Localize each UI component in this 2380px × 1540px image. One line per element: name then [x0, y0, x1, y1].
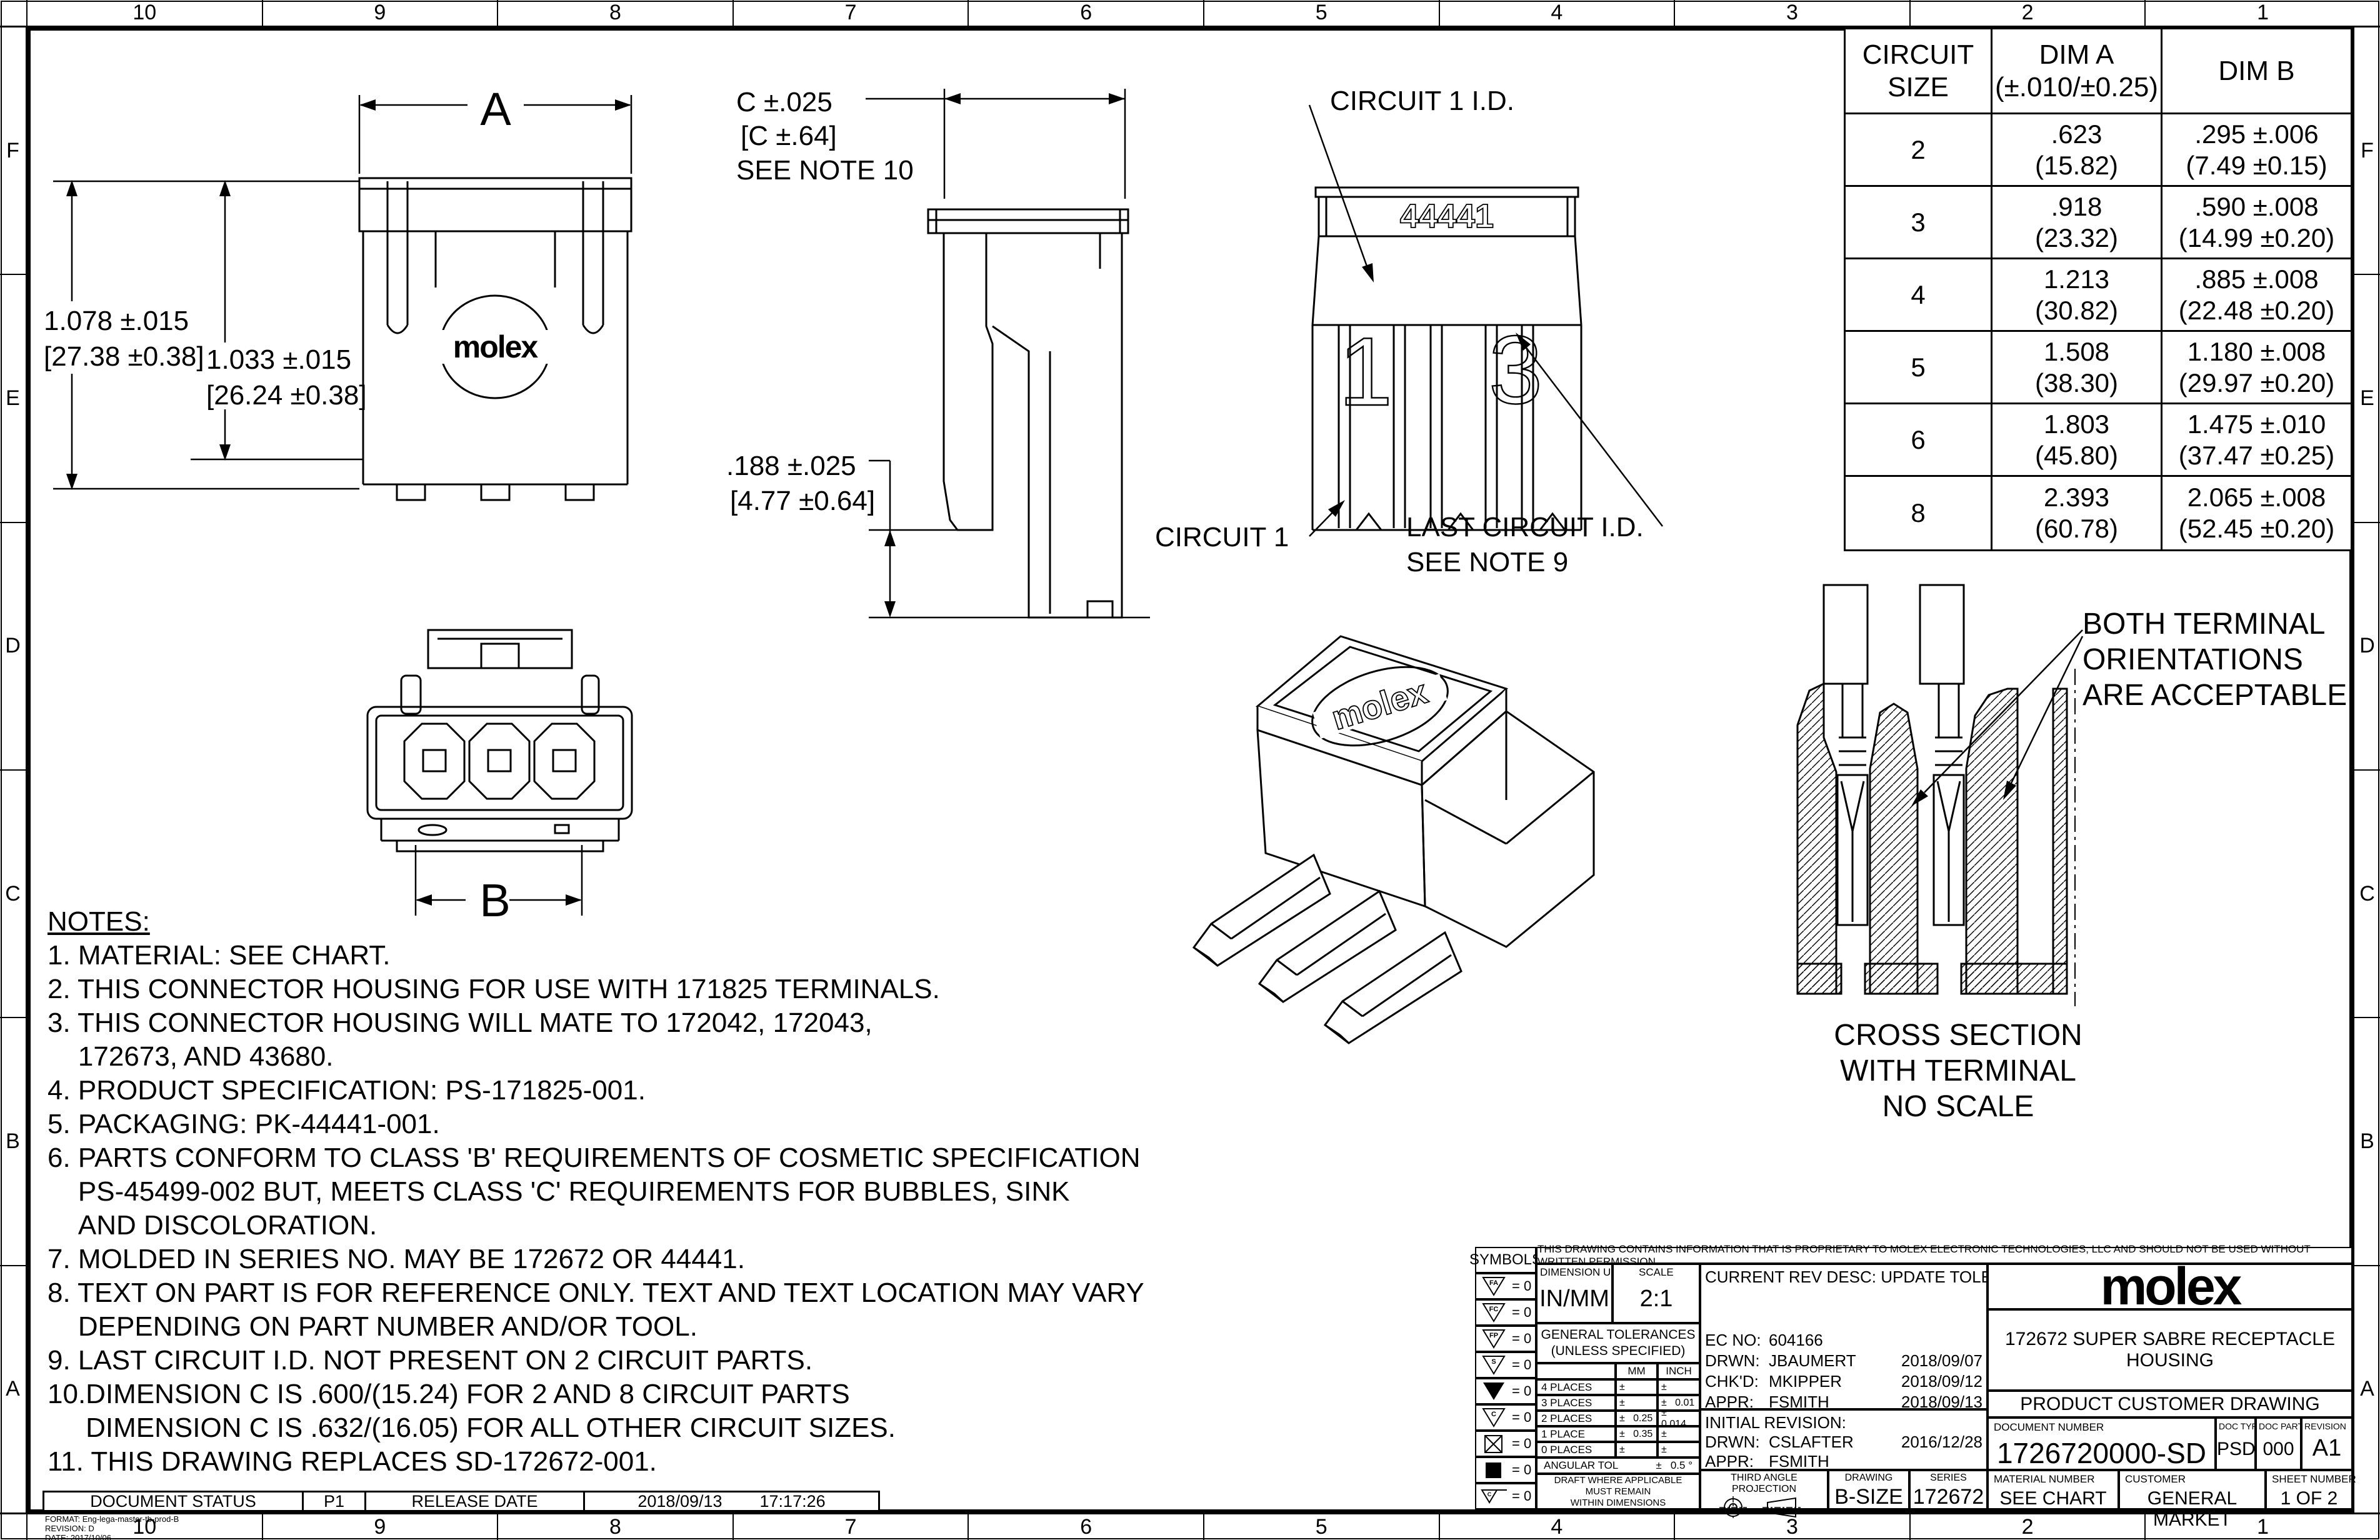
grid-row-label: F: [0, 27, 26, 275]
drawn-label: DRWN:: [1705, 1351, 1760, 1371]
table-header-circuit-size: CIRCUIT SIZE: [1846, 29, 1992, 114]
tol-row-mm: ±: [1616, 1395, 1657, 1411]
side-view-drawing: molex: [37, 81, 650, 506]
svg-text:C: C: [1487, 1491, 1492, 1497]
svg-text:FC: FC: [1489, 1306, 1499, 1313]
release-time: 17:17:26: [760, 1492, 826, 1511]
note-item: 1. MATERIAL: SEE CHART.: [47, 939, 1160, 972]
symbols-legend-heading: SYMBOLS: [1475, 1247, 1536, 1273]
table-cell-dim-a: .623(15.82): [1992, 114, 2162, 187]
tol-row-inch: ±: [1657, 1379, 1700, 1395]
checked-date: 2018/09/12: [1875, 1372, 1982, 1391]
grid-row-label: A: [0, 1266, 26, 1512]
third-angle-projection-cell: THIRD ANGLE PROJECTION: [1700, 1470, 1828, 1509]
table-cell-dim-a: 1.803(45.80): [1992, 404, 2162, 477]
note-item: 7. MOLDED IN SERIES NO. MAY BE 172672 OR…: [47, 1242, 1160, 1276]
third-angle-projection-icon: [1702, 1495, 1827, 1520]
table-cell-size: 3: [1846, 187, 1992, 259]
tol-row-mm: ±: [1616, 1442, 1657, 1457]
grid-col-label: 9: [263, 1514, 499, 1540]
scale-value: 2:1: [1612, 1286, 1700, 1312]
crossed-box-icon: [1479, 1432, 1508, 1455]
tol-row-inch: ±: [1657, 1442, 1700, 1457]
notes-list: NOTES: 1. MATERIAL: SEE CHART. 2. THIS C…: [47, 905, 1160, 1479]
grid-col-label: 5: [1204, 0, 1440, 26]
svg-text:FA: FA: [1489, 1279, 1498, 1287]
svg-text:FP: FP: [1489, 1332, 1498, 1339]
table-cell-size: 6: [1846, 404, 1992, 477]
dim-c-mm: [C ±.64]: [741, 120, 837, 152]
initial-drawn-date: 2016/12/28: [1875, 1432, 1982, 1452]
grid-ruler-top: 10 9 8 7 6 5 4 3 2 1: [0, 0, 2380, 27]
grid-corner: [0, 1514, 27, 1540]
format-line: FORMAT: Eng-lega-master-tb-prod-B: [45, 1514, 179, 1524]
table-header-dim-b: DIM B: [2162, 29, 2351, 114]
table-cell-size: 5: [1846, 332, 1992, 404]
terminal-wires: [1824, 585, 1964, 684]
grid-col-label: 6: [969, 1514, 1204, 1540]
tol-row-label: 1 PLACE: [1536, 1426, 1616, 1442]
document-number-cell: DOCUMENT NUMBER 1726720000-SD: [1987, 1417, 2216, 1470]
dim-a-letter: A: [467, 82, 524, 136]
table-cell-dim-b: 1.180 ±.008(29.97 ±0.20): [2162, 332, 2351, 404]
grid-col-label: 1: [2146, 0, 2380, 26]
table-cell-dim-a: 1.508(38.30): [1992, 332, 2162, 404]
format-date-line: DATE: 2017/10/06: [45, 1533, 179, 1540]
grid-row-label: A: [2354, 1266, 2380, 1512]
note-item: 8. TEXT ON PART IS FOR REFERENCE ONLY. T…: [47, 1276, 1160, 1344]
table-cell-dim-b: .590 ±.008(14.99 ±0.20): [2162, 187, 2351, 259]
fp-triangle-icon: FP: [1479, 1327, 1508, 1350]
table-cell-dim-b: .885 ±.008(22.48 ±0.20): [2162, 259, 2351, 332]
ec-no-label: EC NO:: [1705, 1331, 1761, 1350]
grid-row-label: E: [2354, 275, 2380, 522]
grid-row-label: B: [2354, 1018, 2380, 1266]
molded-circuit-3-numeral: 3: [1489, 316, 1542, 424]
svg-text:S: S: [1491, 1358, 1496, 1366]
document-status-label: DOCUMENT STATUS: [42, 1491, 304, 1512]
sheet-number-value: 1 OF 2: [2267, 1488, 2351, 1509]
release-date: 2018/09/13: [637, 1492, 722, 1511]
approved-date: 2018/09/13: [1875, 1392, 1982, 1412]
ec-no-value: 604166: [1769, 1331, 1823, 1350]
initial-drawn-label: DRWN:: [1705, 1432, 1760, 1452]
title-block: SYMBOLS FA = 0 FC = 0 FP = 0 S = 0 = 0 C…: [1475, 1247, 2352, 1509]
drawn-name: JBAUMERT: [1769, 1351, 1856, 1371]
initial-approved-label: APPR:: [1705, 1452, 1754, 1471]
grid-col-label: 7: [734, 1514, 969, 1540]
circuit-1-id-label: CIRCUIT 1 I.D.: [1330, 85, 1514, 117]
customer-value: GENERAL MARKET: [2120, 1488, 2264, 1531]
c-triangle-line-icon: C: [1479, 1485, 1508, 1507]
grid-row-label: D: [0, 523, 26, 771]
initial-approved-name: FSMITH: [1769, 1452, 1829, 1471]
tol-row-mm: ± 0.35: [1616, 1426, 1657, 1442]
svg-text:C: C: [1491, 1411, 1496, 1418]
face-view-drawing: 44441 1 3: [1150, 62, 1719, 581]
grid-col-label: 6: [969, 0, 1204, 26]
molex-logo-text: molex: [453, 329, 539, 364]
fc-triangle-icon: FC: [1479, 1301, 1508, 1324]
dim-c-inch: C ±.025: [736, 86, 832, 119]
connector-profile-outline: [928, 209, 1128, 617]
connector-front-outline: [367, 630, 632, 851]
drawing-sheet: 10 9 8 7 6 5 4 3 2 1 10 9 8 7 6 5 4 3 2 …: [0, 0, 2380, 1540]
doc-part-cell: DOC PART 000: [2256, 1417, 2301, 1470]
revision-cell: REVISION A1: [2301, 1417, 2352, 1470]
table-cell-dim-b: 1.475 ±.010(37.47 ±0.25): [2162, 404, 2351, 477]
sheet-number-label: SHEET NUMBER: [2272, 1473, 2351, 1486]
tol-row-inch: ±: [1657, 1426, 1700, 1442]
last-circuit-id-label: LAST CIRCUIT I.D.: [1406, 511, 1644, 544]
dim-a-header-title: DIM A: [2039, 39, 2114, 71]
grid-row-label: F: [2354, 27, 2380, 275]
molex-logo-side: molex: [437, 296, 552, 398]
molex-wordmark-cell: molex: [1987, 1264, 2352, 1309]
scale-label: SCALE: [1639, 1266, 1674, 1279]
note-item: 6. PARTS CONFORM TO CLASS 'B' REQUIREMEN…: [47, 1141, 1160, 1242]
series-label: SERIES: [1911, 1472, 1986, 1484]
symbol-row: S = 0: [1475, 1352, 1536, 1378]
revision-value: A1: [2302, 1435, 2351, 1462]
tol-row-mm: ±: [1616, 1379, 1657, 1395]
dimension-arrows: [66, 99, 631, 490]
grid-col-label: 10: [27, 0, 263, 26]
doc-type-value: PSD: [2217, 1439, 2254, 1460]
table-cell-dim-b: .295 ±.006(7.49 ±0.15): [2162, 114, 2351, 187]
isometric-view-drawing: molex: [1156, 612, 1631, 1056]
see-note-10-label: SEE NOTE 10: [736, 154, 914, 187]
table-cell-size: 2: [1846, 114, 1992, 187]
approved-label: APPR:: [1705, 1392, 1754, 1412]
third-angle-projection-label: THIRD ANGLE PROJECTION: [1701, 1472, 1827, 1495]
checked-label: CHK'D:: [1705, 1372, 1759, 1391]
dimension-units-value: IN/MM: [1536, 1286, 1612, 1312]
grid-row-label: D: [2354, 523, 2380, 771]
symbol-row: FA = 0: [1475, 1273, 1536, 1299]
grid-ruler-left: F E D C B A: [0, 27, 27, 1512]
dim-depth-inch: .188 ±.025: [726, 450, 856, 482]
initial-drawn-name: CSLAFTER: [1769, 1432, 1854, 1452]
dim-height-outer-mm: [27.38 ±0.38]: [44, 341, 225, 373]
note-item: 10.DIMENSION C IS .600/(15.24) FOR 2 AND…: [47, 1377, 1160, 1445]
checked-name: MKIPPER: [1769, 1372, 1842, 1391]
table-cell-size: 8: [1846, 477, 1992, 549]
note-item: 3. THIS CONNECTOR HOUSING WILL MATE TO 1…: [47, 1006, 1160, 1074]
tol-inch-header: INCH: [1657, 1363, 1700, 1379]
table-cell-size: 4: [1846, 259, 1992, 332]
symbol-row: C = 0: [1475, 1483, 1536, 1509]
revision-label: REVISION: [2304, 1421, 2351, 1431]
document-status-value: P1: [304, 1491, 366, 1512]
table-cell-dim-a: 1.213(30.82): [1992, 259, 2162, 332]
document-number-label: DOCUMENT NUMBER: [1994, 1421, 2214, 1434]
note-item: 9. LAST CIRCUIT I.D. NOT PRESENT ON 2 CI…: [47, 1344, 1160, 1377]
angular-tolerance-row: ANGULAR TOL± 0.5 °: [1536, 1457, 1700, 1474]
tol-row-mm: ± 0.25: [1616, 1411, 1657, 1426]
grid-col-label: 4: [1440, 1514, 1676, 1540]
molded-circuit-1-numeral: 1: [1339, 317, 1392, 426]
grid-col-label: 2: [1911, 0, 2146, 26]
cross-section-caption: CROSS SECTION WITH TERMINAL NO SCALE: [1830, 1017, 2086, 1124]
note-item: 2. THIS CONNECTOR HOUSING FOR USE WITH 1…: [47, 972, 1160, 1006]
grid-corner: [0, 0, 27, 26]
notes-heading: NOTES:: [47, 905, 1160, 939]
drawing-size-cell: DRAWING B-SIZE: [1828, 1470, 1909, 1509]
tol-row-label: 2 PLACES: [1536, 1411, 1616, 1426]
dim-height-inner-inch: 1.033 ±.015: [206, 344, 375, 376]
tol-row-inch: ± 0.014: [1657, 1411, 1700, 1426]
fa-triangle-icon: FA: [1479, 1275, 1508, 1297]
material-number-value: SEE CHART: [1989, 1488, 2117, 1509]
grid-row-label: C: [2354, 771, 2380, 1018]
molded-series-number: 44441: [1400, 197, 1494, 235]
symbol-row: = 0: [1475, 1378, 1536, 1404]
draft-note: DRAFT WHERE APPLICABLE MUST REMAIN WITHI…: [1536, 1474, 1700, 1509]
format-fine-print: FORMAT: Eng-lega-master-tb-prod-B REVISI…: [45, 1514, 179, 1540]
dim-height-inner-mm: [26.24 ±0.38]: [206, 379, 387, 412]
doc-part-value: 000: [2257, 1439, 2300, 1460]
table-cell-dim-b: 2.065 ±.008(52.45 ±0.20): [2162, 477, 2351, 549]
solid-square-icon: [1479, 1459, 1508, 1481]
drawn-date: 2018/09/07: [1875, 1351, 1982, 1371]
tol-row-label: 0 PLACES: [1536, 1442, 1616, 1457]
release-date-label: RELEASE DATE: [366, 1491, 585, 1512]
dim-depth-mm: [4.77 ±0.64]: [730, 485, 875, 517]
sheet-number-cell: SHEET NUMBER 1 OF 2: [2266, 1470, 2352, 1509]
s-triangle-icon: S: [1479, 1354, 1508, 1376]
material-number-label: MATERIAL NUMBER: [1994, 1473, 2117, 1486]
release-date-value: 2018/09/13 17:17:26: [585, 1491, 880, 1512]
circuit-1-label: CIRCUIT 1: [1155, 521, 1289, 554]
customer-label: CUSTOMER: [2125, 1473, 2264, 1486]
format-revision-line: REVISION: D: [45, 1524, 179, 1533]
document-status-bar: DOCUMENT STATUS P1 RELEASE DATE 2018/09/…: [42, 1491, 880, 1512]
part-title-cell: 172672 SUPER SABRE RECEPTACLE HOUSING: [1987, 1309, 2352, 1391]
c-triangle-icon: C: [1479, 1406, 1508, 1429]
tol-row-label: 4 PLACES: [1536, 1379, 1616, 1395]
note-item: 11. THIS DRAWING REPLACES SD-172672-001.: [47, 1445, 1160, 1479]
tol-blank-header: [1536, 1363, 1616, 1379]
series-value: 172672: [1911, 1485, 1986, 1509]
note-item: 4. PRODUCT SPECIFICATION: PS-171825-001.: [47, 1074, 1160, 1107]
circuit-size-dimension-table: CIRCUIT SIZE DIM A (±.010/±0.25) DIM B 2…: [1844, 27, 2352, 551]
customer-cell: CUSTOMER GENERAL MARKET: [2119, 1470, 2266, 1509]
grid-col-label: 8: [498, 1514, 734, 1540]
grid-col-label: 7: [734, 0, 969, 26]
grid-row-label: E: [0, 275, 26, 522]
material-number-cell: MATERIAL NUMBER SEE CHART: [1987, 1470, 2119, 1509]
tol-mm-header: MM: [1616, 1363, 1657, 1379]
table-header-dim-a: DIM A (±.010/±0.25): [1992, 29, 2162, 114]
symbol-row: FC = 0: [1475, 1299, 1536, 1326]
approved-name: FSMITH: [1769, 1392, 1829, 1412]
grid-ruler-bottom: 10 9 8 7 6 5 4 3 2 1: [0, 1512, 2380, 1540]
grid-col-label: 2: [1911, 1514, 2146, 1540]
grid-col-label: 5: [1204, 1514, 1440, 1540]
table-cell-dim-a: 2.393(60.78): [1992, 477, 2162, 549]
see-note-9-label: SEE NOTE 9: [1406, 546, 1568, 579]
symbol-row: = 0: [1475, 1431, 1536, 1457]
grid-col-label: 8: [498, 0, 734, 26]
grid-row-label: C: [0, 771, 26, 1018]
grid-col-label: 4: [1440, 0, 1676, 26]
series-cell: SERIES 172672: [1909, 1470, 1987, 1509]
terminal-orientation-callout: BOTH TERMINAL ORIENTATIONS ARE ACCEPTABL…: [2082, 606, 2347, 713]
initial-revision-label: INITIAL REVISION:: [1705, 1413, 1846, 1432]
document-number-value: 1726720000-SD: [1989, 1436, 2214, 1470]
dim-a-header-tolerance: (±.010/±0.25): [1995, 71, 2158, 104]
grid-row-label: B: [0, 1018, 26, 1266]
drawing-label: DRAWING: [1829, 1472, 1908, 1484]
grid-ruler-right: F E D C B A: [2352, 27, 2380, 1512]
document-title-cell: PRODUCT CUSTOMER DRAWING: [1987, 1391, 2352, 1417]
doc-type-cell: DOC TYPE PSD: [2216, 1417, 2256, 1470]
dimension-arrows: [884, 93, 1125, 617]
symbol-row: C = 0: [1475, 1404, 1536, 1431]
doc-type-label: DOC TYPE: [2219, 1421, 2254, 1431]
grid-col-label: 3: [1675, 0, 1911, 26]
note-item: 5. PACKAGING: PK-44441-001.: [47, 1107, 1160, 1141]
tol-row-label: 3 PLACES: [1536, 1395, 1616, 1411]
symbol-row: = 0: [1475, 1457, 1536, 1483]
drawing-size-value: B-SIZE: [1829, 1485, 1908, 1509]
symbol-row: FP = 0: [1475, 1326, 1536, 1352]
table-cell-dim-a: .918(23.32): [1992, 187, 2162, 259]
general-tolerances-heading: GENERAL TOLERANCES (UNLESS SPECIFIED): [1536, 1323, 1700, 1363]
dim-height-outer-inch: 1.078 ±.015: [44, 305, 212, 337]
solid-triangle-icon: [1479, 1380, 1508, 1402]
molex-wordmark: molex: [2101, 1256, 2240, 1317]
doc-part-label: DOC PART: [2259, 1421, 2300, 1431]
grid-col-label: 9: [263, 0, 499, 26]
